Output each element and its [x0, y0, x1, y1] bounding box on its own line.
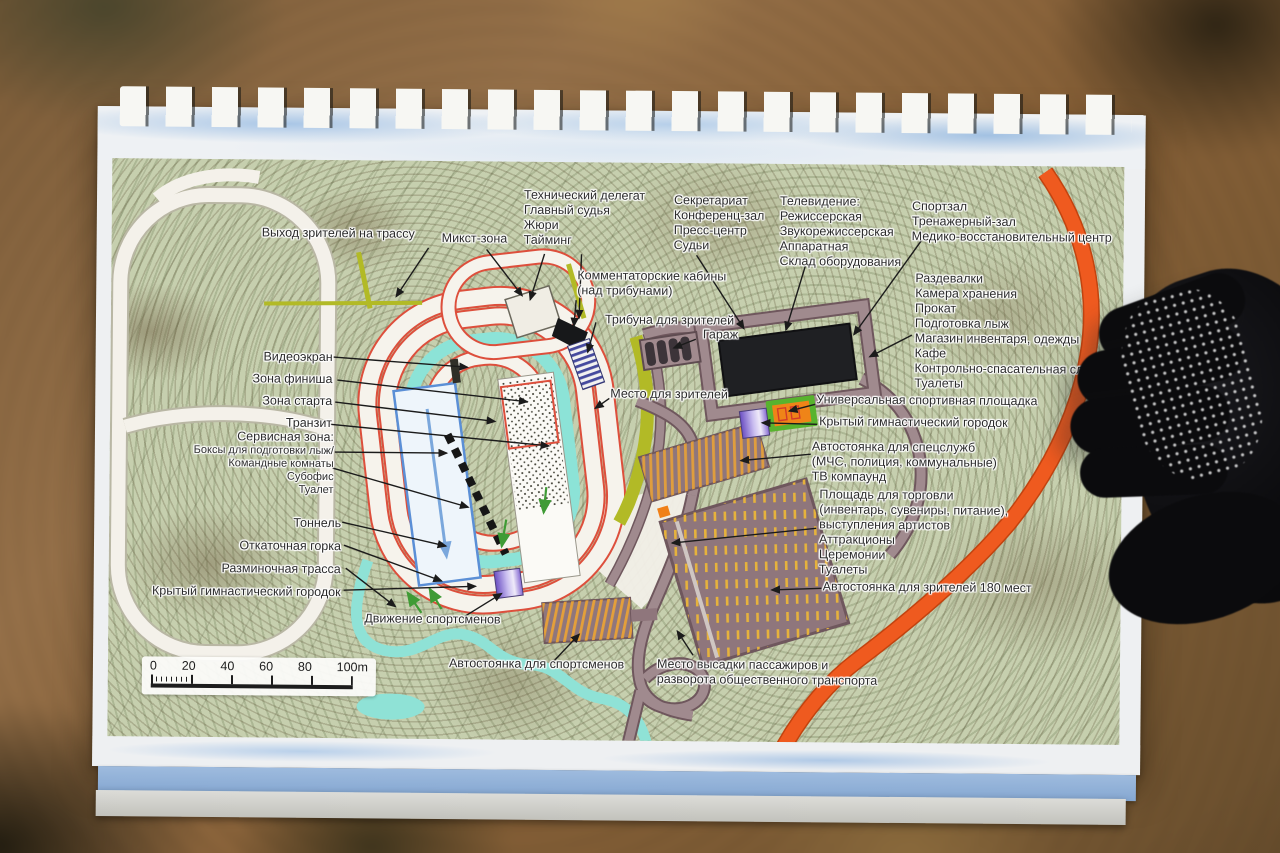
- scale-ruler: [151, 674, 353, 689]
- label-line: разворота общественного транспорта: [657, 672, 878, 689]
- label-start-zone: Зона старта: [252, 393, 332, 416]
- label-left-lower-column: Тоннель Откаточная горка Разминочная тра…: [152, 514, 341, 608]
- scale-tick-label: 100m: [337, 660, 368, 674]
- label-line: Телевидение:: [780, 194, 902, 210]
- label-tv-block: Телевидение: Режиссерская Звукорежиссерс…: [779, 194, 901, 270]
- label-line: Площадь для торговли: [819, 487, 1008, 504]
- label-line: выступления артистов: [819, 517, 1008, 534]
- site-plan-map: Выход зрителей на трассу Микст-зона Техн…: [107, 158, 1124, 745]
- label-commentator-block: Комментаторские кабины (над трибунами): [577, 268, 726, 299]
- label-warmup-track: Разминочная трасса: [152, 560, 341, 585]
- notebook-page: Выход зрителей на трассу Микст-зона Техн…: [92, 106, 1146, 775]
- label-spectator-parking: Автостоянка для зрителей 180 мест: [823, 579, 1032, 596]
- label-line: Секретариат: [674, 193, 765, 209]
- label-line: (над трибунами): [577, 283, 726, 299]
- label-video-screen: Видеоэкран: [253, 349, 333, 372]
- label-rolling-hill: Откаточная горка: [152, 537, 341, 562]
- label-services-block: Раздевалки Камера хранения Прокат Подгот…: [914, 271, 1113, 393]
- label-zones-column: Видеоэкран Зона финиша Зона старта Транз…: [252, 349, 333, 438]
- label-spectator-exit: Выход зрителей на трассу: [262, 225, 415, 241]
- label-line: Аттракционы: [819, 532, 1008, 549]
- label-gym-block: Спортзал Тренажерный-зал Медико-восстано…: [912, 199, 1112, 246]
- label-service-zone-block: Сервисная зона: Боксы для подготовки лыж…: [193, 429, 334, 497]
- label-line: Жюри: [524, 218, 645, 234]
- label-line: (инвентарь, сувениры, питание),: [819, 502, 1008, 519]
- label-line: Склад оборудования: [779, 254, 901, 270]
- label-line: Камера хранения: [915, 286, 1113, 303]
- label-line: Сервисная зона:: [194, 429, 334, 445]
- scale-tick-label: 40: [220, 659, 234, 673]
- label-special-parking-block: Автостоянка для спецслужб (МЧС, полиция,…: [812, 439, 998, 486]
- label-universal-ground: Универсальная спортивная площадка: [816, 392, 1037, 409]
- label-tribune: Трибуна для зрителей: [605, 312, 734, 328]
- label-line: Командные комнаты: [194, 457, 334, 471]
- label-line: Раздевалки: [915, 271, 1113, 288]
- label-line: Главный судья: [524, 203, 645, 219]
- label-line: Комментаторские кабины: [577, 268, 726, 284]
- label-line: Боксы для подготовки лыж/: [194, 444, 334, 458]
- main-building: [719, 324, 857, 397]
- label-line: ТВ компаунд: [812, 469, 997, 486]
- spiral-notebook: Выход зрителей на трассу Микст-зона Техн…: [92, 86, 1150, 835]
- label-garage: Гараж: [703, 327, 738, 342]
- label-line: Субофис: [193, 470, 333, 484]
- label-trade-square-block: Площадь для торговли (инвентарь, сувенир…: [819, 487, 1009, 579]
- label-mixed-zone: Микст-зона: [442, 231, 508, 247]
- label-officials-block: Технический делегат Главный судья Жюри Т…: [524, 188, 646, 249]
- label-line: Медико-восстановительный центр: [912, 229, 1112, 246]
- label-line: Подготовка лыж: [915, 316, 1113, 333]
- scale-numbers: 0 20 40 60 80 100m: [150, 658, 368, 676]
- label-secretariat-block: Секретариат Конференц-зал Пресс-центр Су…: [674, 193, 765, 254]
- label-covered-gym-left: Крытый гимнастический городок: [152, 583, 341, 608]
- label-finish-zone: Зона финиша: [252, 371, 332, 394]
- label-line: Технический делегат: [524, 188, 645, 204]
- label-line: Туалет: [193, 483, 333, 497]
- label-line: Спортзал: [912, 199, 1112, 216]
- label-line: Прокат: [915, 301, 1113, 318]
- covered-gym-cylinder: [494, 568, 523, 598]
- label-athletes-parking: Автостоянка для спортсменов: [449, 656, 624, 673]
- label-covered-gym-right: Крытый гимнастический городок: [819, 414, 1008, 431]
- label-tunnel: Тоннель: [153, 514, 342, 539]
- label-line: Контрольно-спасательная служба: [914, 361, 1112, 378]
- label-line: Магазин инвентаря, одежды: [915, 331, 1113, 348]
- label-line: Пресс-центр: [674, 223, 765, 239]
- label-line: Туалеты: [819, 562, 1008, 579]
- scale-bar: 0 20 40 60 80 100m: [142, 656, 376, 696]
- label-line: Тренажерный-зал: [912, 214, 1112, 231]
- label-dropoff-block: Место высадки пассажиров и разворота общ…: [657, 657, 878, 689]
- label-line: Кафе: [915, 346, 1113, 363]
- label-line: Конференц-зал: [674, 208, 765, 224]
- scale-tick-label: 80: [298, 660, 312, 674]
- label-line: Судьи: [674, 238, 765, 254]
- label-line: (МЧС, полиция, коммунальные): [812, 454, 997, 471]
- label-spectator-place: Место для зрителей: [610, 386, 728, 402]
- label-athletes-movement: Движение спортсменов: [364, 611, 500, 627]
- label-line: Туалеты: [914, 376, 1112, 393]
- scale-tick-label: 0: [150, 658, 157, 672]
- scale-tick-label: 60: [259, 659, 273, 673]
- label-line: Аппаратная: [780, 239, 902, 255]
- label-line: Звукорежиссерская: [780, 224, 902, 240]
- photo-scene: Выход зрителей на трассу Микст-зона Техн…: [0, 0, 1280, 853]
- label-line: Тайминг: [524, 233, 645, 249]
- scale-tick-label: 20: [182, 659, 196, 673]
- label-line: Автостоянка для спецслужб: [812, 439, 997, 456]
- universal-sports-field: [765, 395, 818, 432]
- ski-stadium-track: [352, 251, 627, 616]
- label-line: Церемонии: [819, 547, 1008, 564]
- label-line: Режиссерская: [780, 209, 902, 225]
